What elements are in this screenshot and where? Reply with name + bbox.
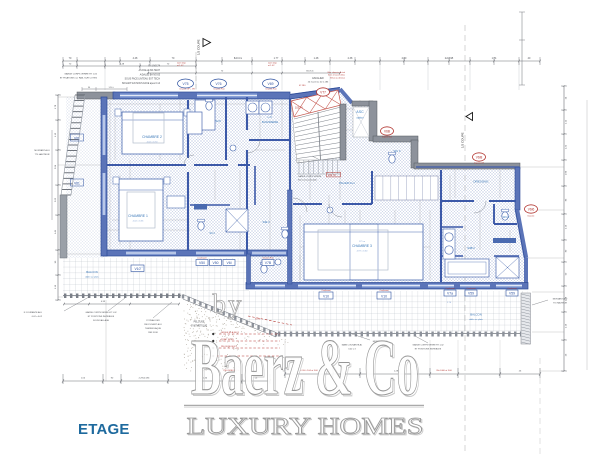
svg-text:171 m: 171 m [359,241,365,243]
svg-text:SOUS FACE LINTEAU EXT TECH: SOUS FACE LINTEAU EXT TECH [125,78,161,81]
svg-text:V6I6: V6I6 [528,207,535,211]
svg-text:V6I8: V6I8 [476,155,483,159]
svg-text:at 1.02: at 1.02 [177,64,184,67]
svg-text:Chassis Fixe: Chassis Fixe [262,258,274,260]
svg-text:Sd 4: Sd 4 [209,231,215,235]
svg-text:50.78: 50.78 [255,319,261,321]
svg-text:Imposte OF: Imposte OF [474,162,485,165]
svg-text:SdB 2: SdB 2 [467,246,475,250]
svg-text:1.74: 1.74 [492,57,497,60]
svg-text:BxOCm: BxOCm [306,71,314,73]
svg-text:Imposte fixe: Imposte fixe [382,136,392,139]
svg-text:V50: V50 [199,261,205,265]
svg-text:DRESSING: DRESSING [473,180,489,184]
svg-text:V6B: V6B [384,129,390,133]
svg-text:THERMOLAQUE: THERMOLAQUE [145,327,162,330]
svg-text:26x1.060 at 3.60: 26x1.060 at 3.60 [436,369,452,372]
svg-text:CHAMBRE 2: CHAMBRE 2 [142,135,162,139]
svg-text:V7B: V7B [265,261,272,265]
svg-text:V10: V10 [381,294,387,298]
svg-text:4.97 x 3.60: 4.97 x 3.60 [357,251,369,253]
svg-text:Velux au dessus: Velux au dessus [330,77,345,79]
svg-text:V76: V76 [215,82,221,86]
svg-text:4.48: 4.48 [133,57,138,60]
svg-text:Mur chassis de toit: Mur chassis de toit [328,71,346,74]
svg-text:SOUS DALLAGE: SOUS DALLAGE [93,319,110,322]
svg-text:L./V.: L./V. [268,116,273,119]
svg-text:770 HAUTEUR: 770 HAUTEUR [553,302,568,305]
svg-text:1.77: 1.77 [274,57,279,60]
svg-text:ESCALIER: ESCALIER [312,77,324,80]
svg-text:V59: V59 [468,291,474,295]
svg-text:MONTANT ALU: MONTANT ALU [553,298,568,301]
svg-text:Rail sur bas de dalle: Rail sur bas de dalle [298,178,318,181]
svg-text:770 HAUTEUR: 770 HAUTEUR [35,153,50,156]
svg-text:V7a: V7a [447,291,453,295]
svg-text:V10: V10 [323,294,329,298]
svg-text:Coulissant: Coulissant [445,287,455,290]
svg-text:0.02 x 0.02: 0.02 x 0.02 [32,316,43,318]
svg-text:V75: V75 [182,82,188,86]
svg-text:2.29x2.094: 2.29x2.094 [139,378,151,380]
svg-text:SdE 3: SdE 3 [262,220,270,224]
svg-text:GARDE CORPS VERRE HT 1.02: GARDE CORPS VERRE HT 1.02 [85,311,117,314]
svg-text:GARDE CORPS VERRE HT 1.05: GARDE CORPS VERRE HT 1.05 [64,73,97,76]
svg-text:2x1.195: 2x1.195 [445,57,454,60]
svg-text:ET POSITIONS INVISIBLES: ET POSITIONS INVISIBLES [88,316,115,318]
svg-text:2.40: 2.40 [402,57,407,60]
svg-text:A/DALLE BA NO.65: A/DALLE BA NO.65 [140,73,161,76]
svg-text:V69: V69 [267,82,273,86]
svg-text:Coulissant: Coulissant [379,289,389,292]
svg-text:N COURANTE ALU: N COURANTE ALU [24,311,43,314]
svg-text:2.38: 2.38 [348,57,353,60]
svg-text:1.50 t: 1.50 t [108,86,113,89]
svg-text:20 marches de 0.186: 20 marches de 0.186 [308,80,329,83]
svg-text:160.79: 160.79 [328,174,336,177]
svg-text:V6I: V6I [226,261,231,265]
svg-text:8x0.Cm: 8x0.Cm [234,57,242,60]
svg-text:VT7: VT7 [320,90,326,94]
svg-text:GARDE CORPS VERRE: GARDE CORPS VERRE [298,175,322,178]
svg-text:1.48: 1.48 [314,57,319,60]
svg-text:POTEAU FER: POTEAU FER [146,319,160,322]
svg-text:WC 3: WC 3 [394,149,401,153]
svg-text:dalle sur plots: dalle sur plots [469,318,483,321]
svg-text:V61: V61 [74,137,80,141]
svg-text:Coulissant: Coulissant [466,287,476,290]
svg-text:PALIER R+1: PALIER R+1 [339,181,355,185]
svg-text:REF N°08: REF N°08 [148,332,158,334]
svg-text:Sd 8: Sd 8 [215,119,221,123]
svg-text:BALCON: BALCON [86,270,98,274]
svg-text:4.02 x 3.55: 4.02 x 3.55 [133,221,145,223]
svg-text:47.180: 47.180 [299,85,306,87]
svg-text:AS DALLE BA TECH: AS DALLE BA TECH [139,69,161,72]
svg-text:V50: V50 [212,261,218,265]
svg-text:V61: V61 [74,182,80,186]
svg-text:Chassis Fixe: Chassis Fixe [213,88,225,90]
svg-text:at 1.02: at 1.02 [268,64,275,67]
svg-text:4.02 x 3.70: 4.02 x 3.70 [147,142,159,144]
svg-text:CHAMBRE 3: CHAMBRE 3 [352,244,372,248]
svg-text:ETAGE: ETAGE [78,421,130,438]
svg-text:Baerz & Co: Baerz & Co [191,324,419,412]
svg-text:dalle sur plots: dalle sur plots [85,276,99,279]
svg-text:R+1 NO.74: R+1 NO.74 [148,66,160,68]
svg-text:Chassis Fixe: Chassis Fixe [265,88,277,90]
svg-text:option: option [356,116,364,120]
svg-text:1/2 COUPE: 1/2 COUPE [461,132,465,148]
svg-text:BUANDERIE: BUANDERIE [262,120,278,124]
svg-text:RECOUVERT ALU: RECOUVERT ALU [144,323,162,326]
svg-text:Coulissant: Coulissant [507,287,517,290]
svg-text:Imposte: Imposte [528,215,535,218]
svg-text:fixes et acces bloc: fixes et acces bloc [328,74,345,77]
svg-text:by: by [213,289,244,319]
svg-text:MONTANT ALU: MONTANT ALU [34,149,50,152]
svg-text:Coulissant: Coulissant [321,289,331,292]
svg-text:ET FIXATIONS ser RAIL SUR COTE: ET FIXATIONS ser RAIL SUR COTES [60,77,98,80]
svg-text:CHAMBRE 1: CHAMBRE 1 [128,214,148,218]
svg-text:WC 4: WC 4 [503,215,510,219]
svg-text:V59: V59 [509,291,515,295]
svg-text:1/2 COUPE: 1/2 COUPE [197,39,201,55]
svg-text:103.74: 103.74 [295,107,303,110]
svg-text:LUXURY HOMES: LUXURY HOMES [187,414,424,440]
svg-text:ASC: ASC [356,110,364,114]
svg-text:BALCON: BALCON [470,313,482,317]
svg-text:+0.16: +0.16 [139,267,145,269]
svg-text:Coulissant: Coulissant [197,257,207,260]
svg-text:ISOLANT EN SOUS FACE apes 0.14: ISOLANT EN SOUS FACE apes 0.14 [122,82,161,85]
svg-text:Chassis OF + VB: Chassis OF + VB [179,88,195,90]
